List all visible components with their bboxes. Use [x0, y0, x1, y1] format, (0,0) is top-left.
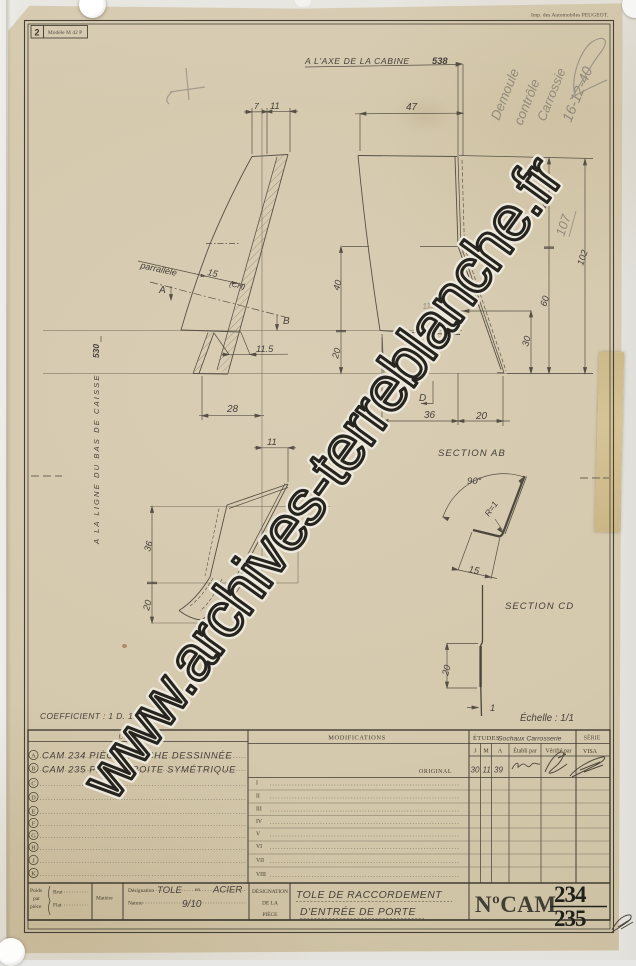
svg-text:ÉTUDES: ÉTUDES	[473, 734, 500, 742]
svg-text:www.archives-terreblanche.fr: www.archives-terreblanche.fr	[68, 145, 576, 812]
svg-text:TOLE: TOLE	[157, 885, 182, 896]
svg-text:M: M	[483, 749, 489, 755]
svg-text:Imp. des Automobiles PEUGEOT.: Imp. des Automobiles PEUGEOT.	[531, 13, 609, 19]
svg-text:Brut: Brut	[53, 890, 63, 896]
svg-text:20: 20	[475, 411, 488, 422]
svg-text:1: 1	[490, 702, 495, 713]
svg-text:par: par	[33, 896, 40, 902]
svg-text:parrallèle: parrallèle	[139, 260, 178, 278]
svg-text:28: 28	[226, 404, 239, 415]
svg-text:H: H	[31, 844, 36, 851]
svg-text:A L'AXE DE LA CABINE: A L'AXE DE LA CABINE	[304, 56, 410, 66]
svg-text:D: D	[31, 794, 36, 801]
svg-text:102: 102	[574, 248, 590, 267]
svg-text:15: 15	[467, 564, 480, 577]
svg-text:11: 11	[483, 766, 491, 775]
svg-text:Échelle : 1/1: Échelle : 1/1	[520, 713, 574, 724]
svg-text:SECTION AB: SECTION AB	[438, 448, 506, 459]
svg-text:A: A	[158, 285, 166, 296]
svg-text:E: E	[32, 808, 36, 815]
svg-text:pièce: pièce	[30, 904, 42, 910]
svg-text:Nature: Nature	[128, 901, 143, 907]
svg-text:III: III	[256, 807, 262, 813]
svg-text:30: 30	[471, 766, 480, 775]
svg-text:Modèle M 42 P: Modèle M 42 P	[48, 30, 82, 36]
svg-text:I: I	[256, 781, 258, 787]
svg-text:Établi par: Établi par	[513, 747, 537, 755]
svg-text:7: 7	[254, 101, 260, 111]
svg-text:en: en	[195, 887, 200, 893]
svg-text:F: F	[32, 820, 36, 827]
svg-text:VI: VI	[256, 844, 262, 850]
svg-text:530: 530	[91, 344, 101, 358]
svg-text:R=1: R=1	[482, 499, 499, 518]
svg-text:234: 234	[554, 882, 587, 907]
svg-text:36: 36	[141, 539, 155, 553]
svg-text:20: 20	[439, 663, 453, 678]
svg-text:107: 107	[553, 212, 574, 238]
svg-text:PIÈCE: PIÈCE	[263, 910, 279, 918]
svg-text:D'ENTRÉE DE PORTE: D'ENTRÉE DE PORTE	[300, 905, 417, 918]
svg-text:C: C	[31, 780, 35, 787]
svg-text:B: B	[283, 316, 290, 327]
svg-text:SECTION CD: SECTION CD	[505, 601, 574, 612]
svg-text:TOLE DE RACCORDEMENT: TOLE DE RACCORDEMENT	[296, 890, 442, 901]
svg-text:2: 2	[34, 28, 39, 38]
svg-text:11.5: 11.5	[256, 344, 274, 354]
svg-text:Matière: Matière	[96, 896, 113, 902]
svg-text:11: 11	[270, 100, 280, 111]
svg-text:15: 15	[207, 267, 220, 279]
svg-text:ACIER: ACIER	[212, 885, 242, 896]
svg-text:A: A	[31, 752, 36, 759]
svg-text:39: 39	[494, 766, 503, 775]
svg-text:J: J	[474, 749, 477, 755]
svg-text:B: B	[31, 765, 35, 772]
svg-text:90°: 90°	[467, 476, 482, 487]
svg-text:36: 36	[424, 410, 436, 421]
svg-text:47: 47	[406, 102, 418, 113]
svg-text:SÉRIE: SÉRIE	[584, 734, 601, 742]
svg-text:K: K	[31, 870, 36, 877]
svg-text:IV: IV	[256, 819, 263, 825]
svg-text:J: J	[32, 857, 35, 864]
svg-text:235: 235	[554, 906, 586, 931]
svg-text:V: V	[256, 832, 261, 838]
svg-text:MODIFICATIONS: MODIFICATIONS	[328, 735, 386, 742]
svg-text:11: 11	[267, 436, 277, 447]
svg-text:G: G	[31, 832, 36, 839]
svg-text:A LA LIGNE DU BAS DE CAISSE: A LA LIGNE DU BAS DE CAISSE	[92, 373, 101, 545]
svg-text:DÉSIGNATION: DÉSIGNATION	[252, 887, 288, 895]
svg-text:40: 40	[330, 278, 344, 292]
svg-text:A: A	[498, 749, 503, 755]
svg-text:VISA: VISA	[583, 749, 598, 755]
svg-text:Flat: Flat	[53, 903, 62, 909]
svg-text:DE LA: DE LA	[262, 901, 278, 907]
svg-text:ORIGINAL: ORIGINAL	[419, 769, 452, 775]
svg-text:Sochaux Carrosserie: Sochaux Carrosserie	[498, 736, 562, 743]
svg-text:NºCAM: NºCAM	[475, 892, 557, 917]
svg-text:9/10: 9/10	[182, 899, 202, 910]
svg-text:II: II	[256, 794, 260, 800]
svg-text:Poids: Poids	[30, 888, 42, 894]
svg-text:VIII: VIII	[256, 872, 266, 878]
svg-text:Désignation: Désignation	[128, 888, 154, 894]
svg-text:VII: VII	[256, 858, 264, 864]
